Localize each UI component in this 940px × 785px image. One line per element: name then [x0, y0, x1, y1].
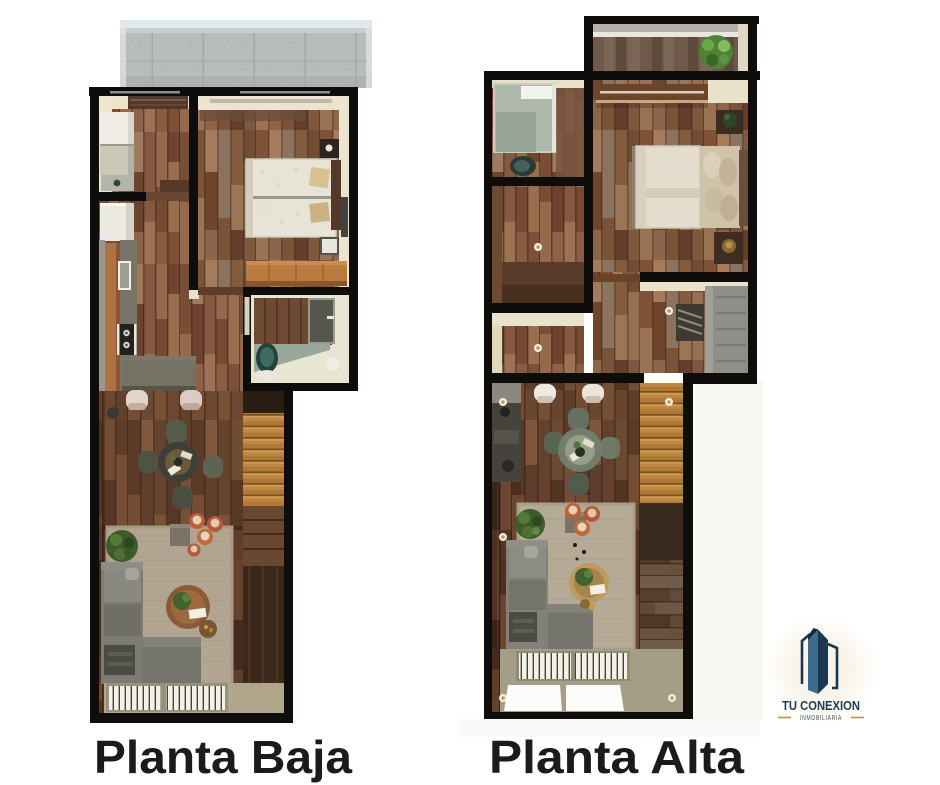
svg-text:Planta Alta: Planta Alta: [489, 731, 744, 783]
svg-text:TU CONEXION: TU CONEXION: [782, 699, 860, 713]
svg-text:INMOBILIARIA: INMOBILIARIA: [800, 713, 842, 722]
svg-text:Planta Baja: Planta Baja: [94, 731, 352, 783]
